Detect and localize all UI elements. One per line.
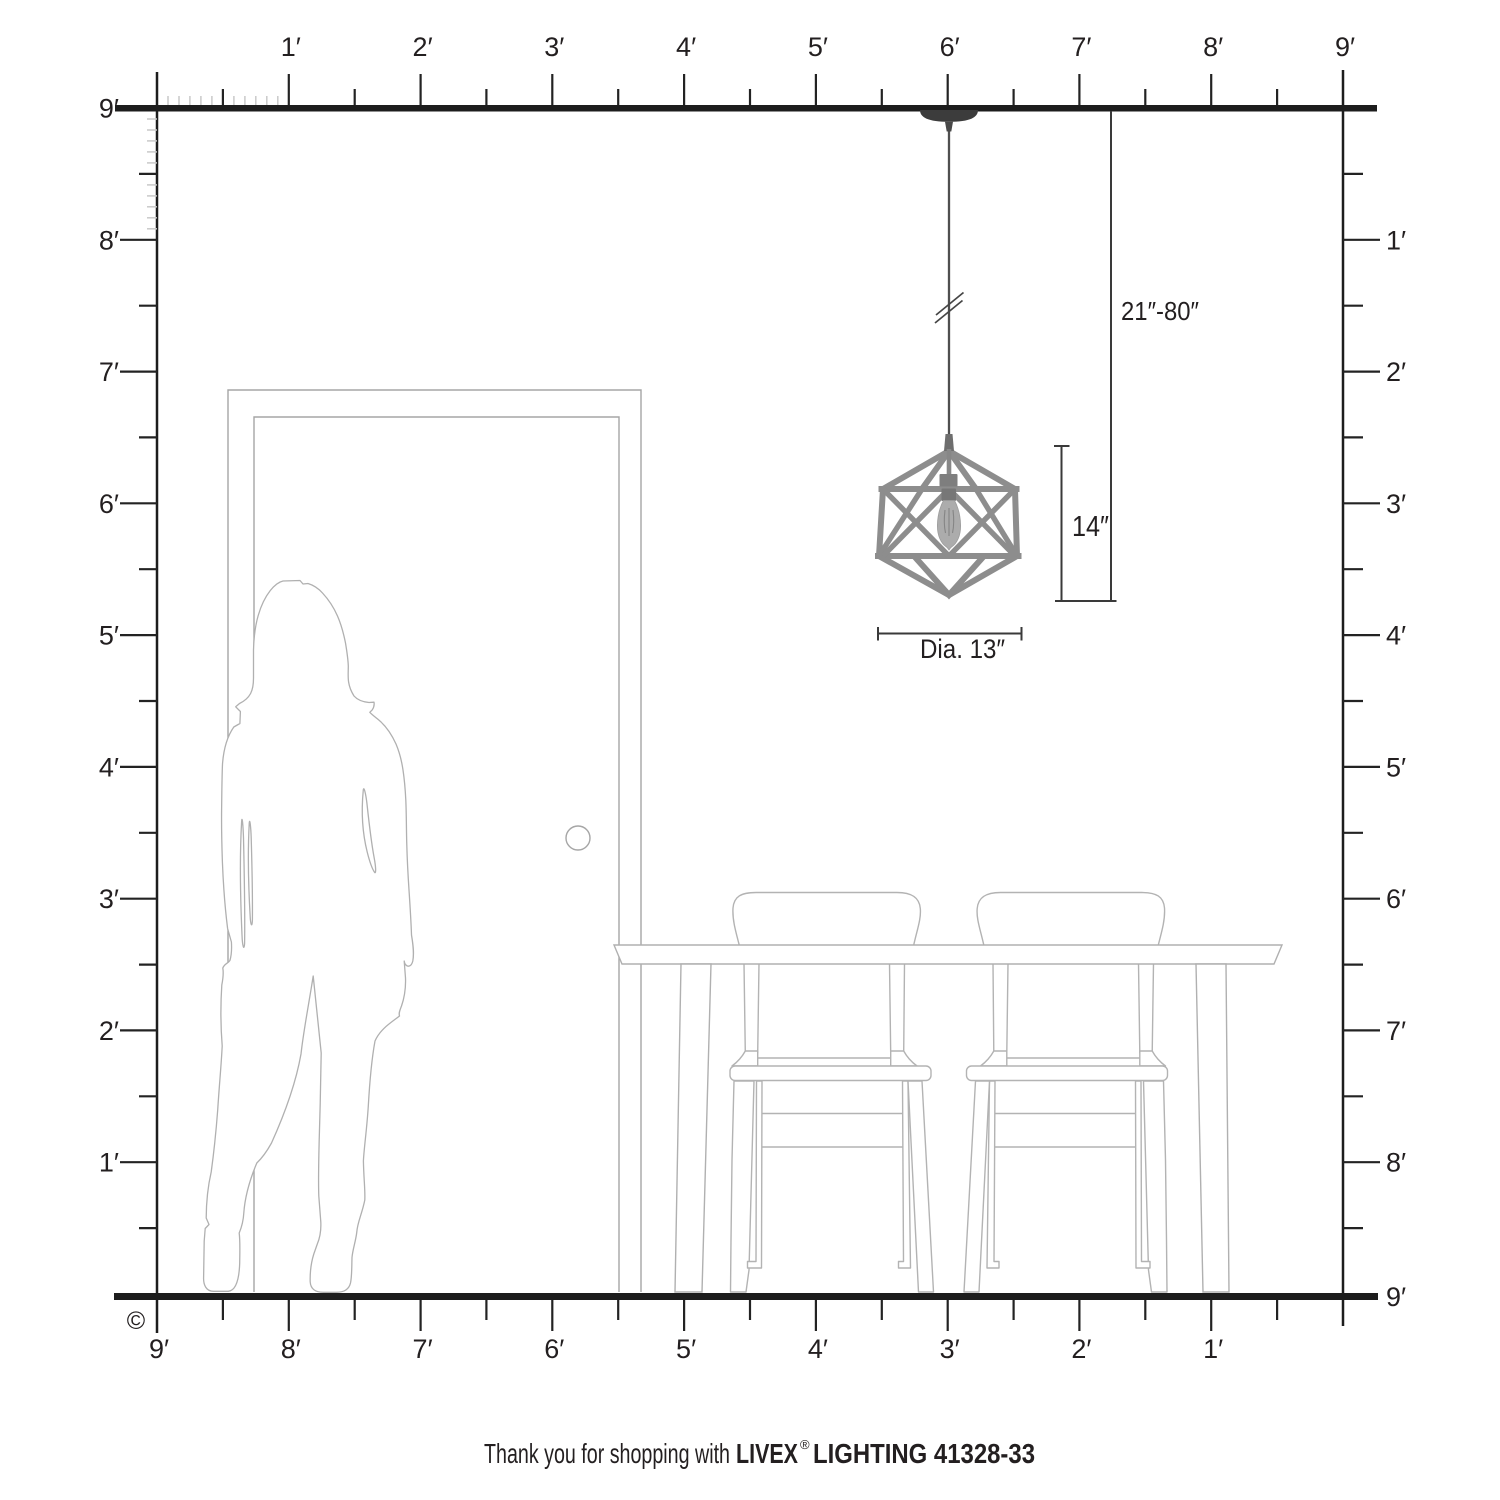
svg-text:5′: 5′ — [676, 1334, 696, 1364]
svg-text:3′: 3′ — [940, 1334, 960, 1364]
svg-text:8′: 8′ — [1203, 32, 1223, 62]
svg-text:9′: 9′ — [149, 1334, 169, 1364]
svg-text:4′: 4′ — [1386, 621, 1406, 651]
svg-text:4′: 4′ — [99, 752, 119, 782]
svg-text:LIVEX: LIVEX — [736, 1438, 798, 1469]
svg-text:®: ® — [800, 1437, 810, 1452]
svg-text:1′: 1′ — [281, 32, 301, 62]
svg-text:8′: 8′ — [99, 225, 119, 255]
svg-text:21″-80″: 21″-80″ — [1121, 296, 1199, 326]
svg-text:6′: 6′ — [1386, 884, 1406, 914]
svg-text:9′: 9′ — [1335, 32, 1355, 62]
svg-text:7′: 7′ — [1071, 32, 1091, 62]
svg-text:3′: 3′ — [99, 884, 119, 914]
svg-text:1′: 1′ — [99, 1148, 119, 1178]
svg-text:2′: 2′ — [1386, 357, 1406, 387]
svg-text:6′: 6′ — [99, 489, 119, 519]
svg-text:©: © — [127, 1307, 146, 1335]
svg-text:7′: 7′ — [413, 1334, 433, 1364]
svg-text:2′: 2′ — [1071, 1334, 1091, 1364]
svg-text:6′: 6′ — [940, 32, 960, 62]
svg-text:8′: 8′ — [281, 1334, 301, 1364]
svg-text:Dia. 13″: Dia. 13″ — [920, 634, 1005, 664]
svg-text:7′: 7′ — [99, 357, 119, 387]
svg-text:9′: 9′ — [99, 94, 119, 124]
svg-text:5′: 5′ — [808, 32, 828, 62]
svg-text:2′: 2′ — [99, 1016, 119, 1046]
svg-text:9′: 9′ — [1386, 1282, 1406, 1312]
svg-text:1′: 1′ — [1386, 225, 1406, 255]
svg-text:4′: 4′ — [676, 32, 696, 62]
svg-text:14″: 14″ — [1072, 511, 1109, 543]
svg-text:1′: 1′ — [1203, 1334, 1223, 1364]
svg-text:8′: 8′ — [1386, 1148, 1406, 1178]
svg-text:LIGHTING 41328-33: LIGHTING 41328-33 — [813, 1438, 1035, 1469]
svg-text:7′: 7′ — [1386, 1016, 1406, 1046]
svg-text:5′: 5′ — [1386, 752, 1406, 782]
svg-text:Thank you for shopping with: Thank you for shopping with — [484, 1438, 730, 1469]
svg-text:3′: 3′ — [544, 32, 564, 62]
svg-text:4′: 4′ — [808, 1334, 828, 1364]
svg-text:5′: 5′ — [99, 621, 119, 651]
svg-text:6′: 6′ — [544, 1334, 564, 1364]
svg-text:3′: 3′ — [1386, 489, 1406, 519]
svg-text:2′: 2′ — [413, 32, 433, 62]
